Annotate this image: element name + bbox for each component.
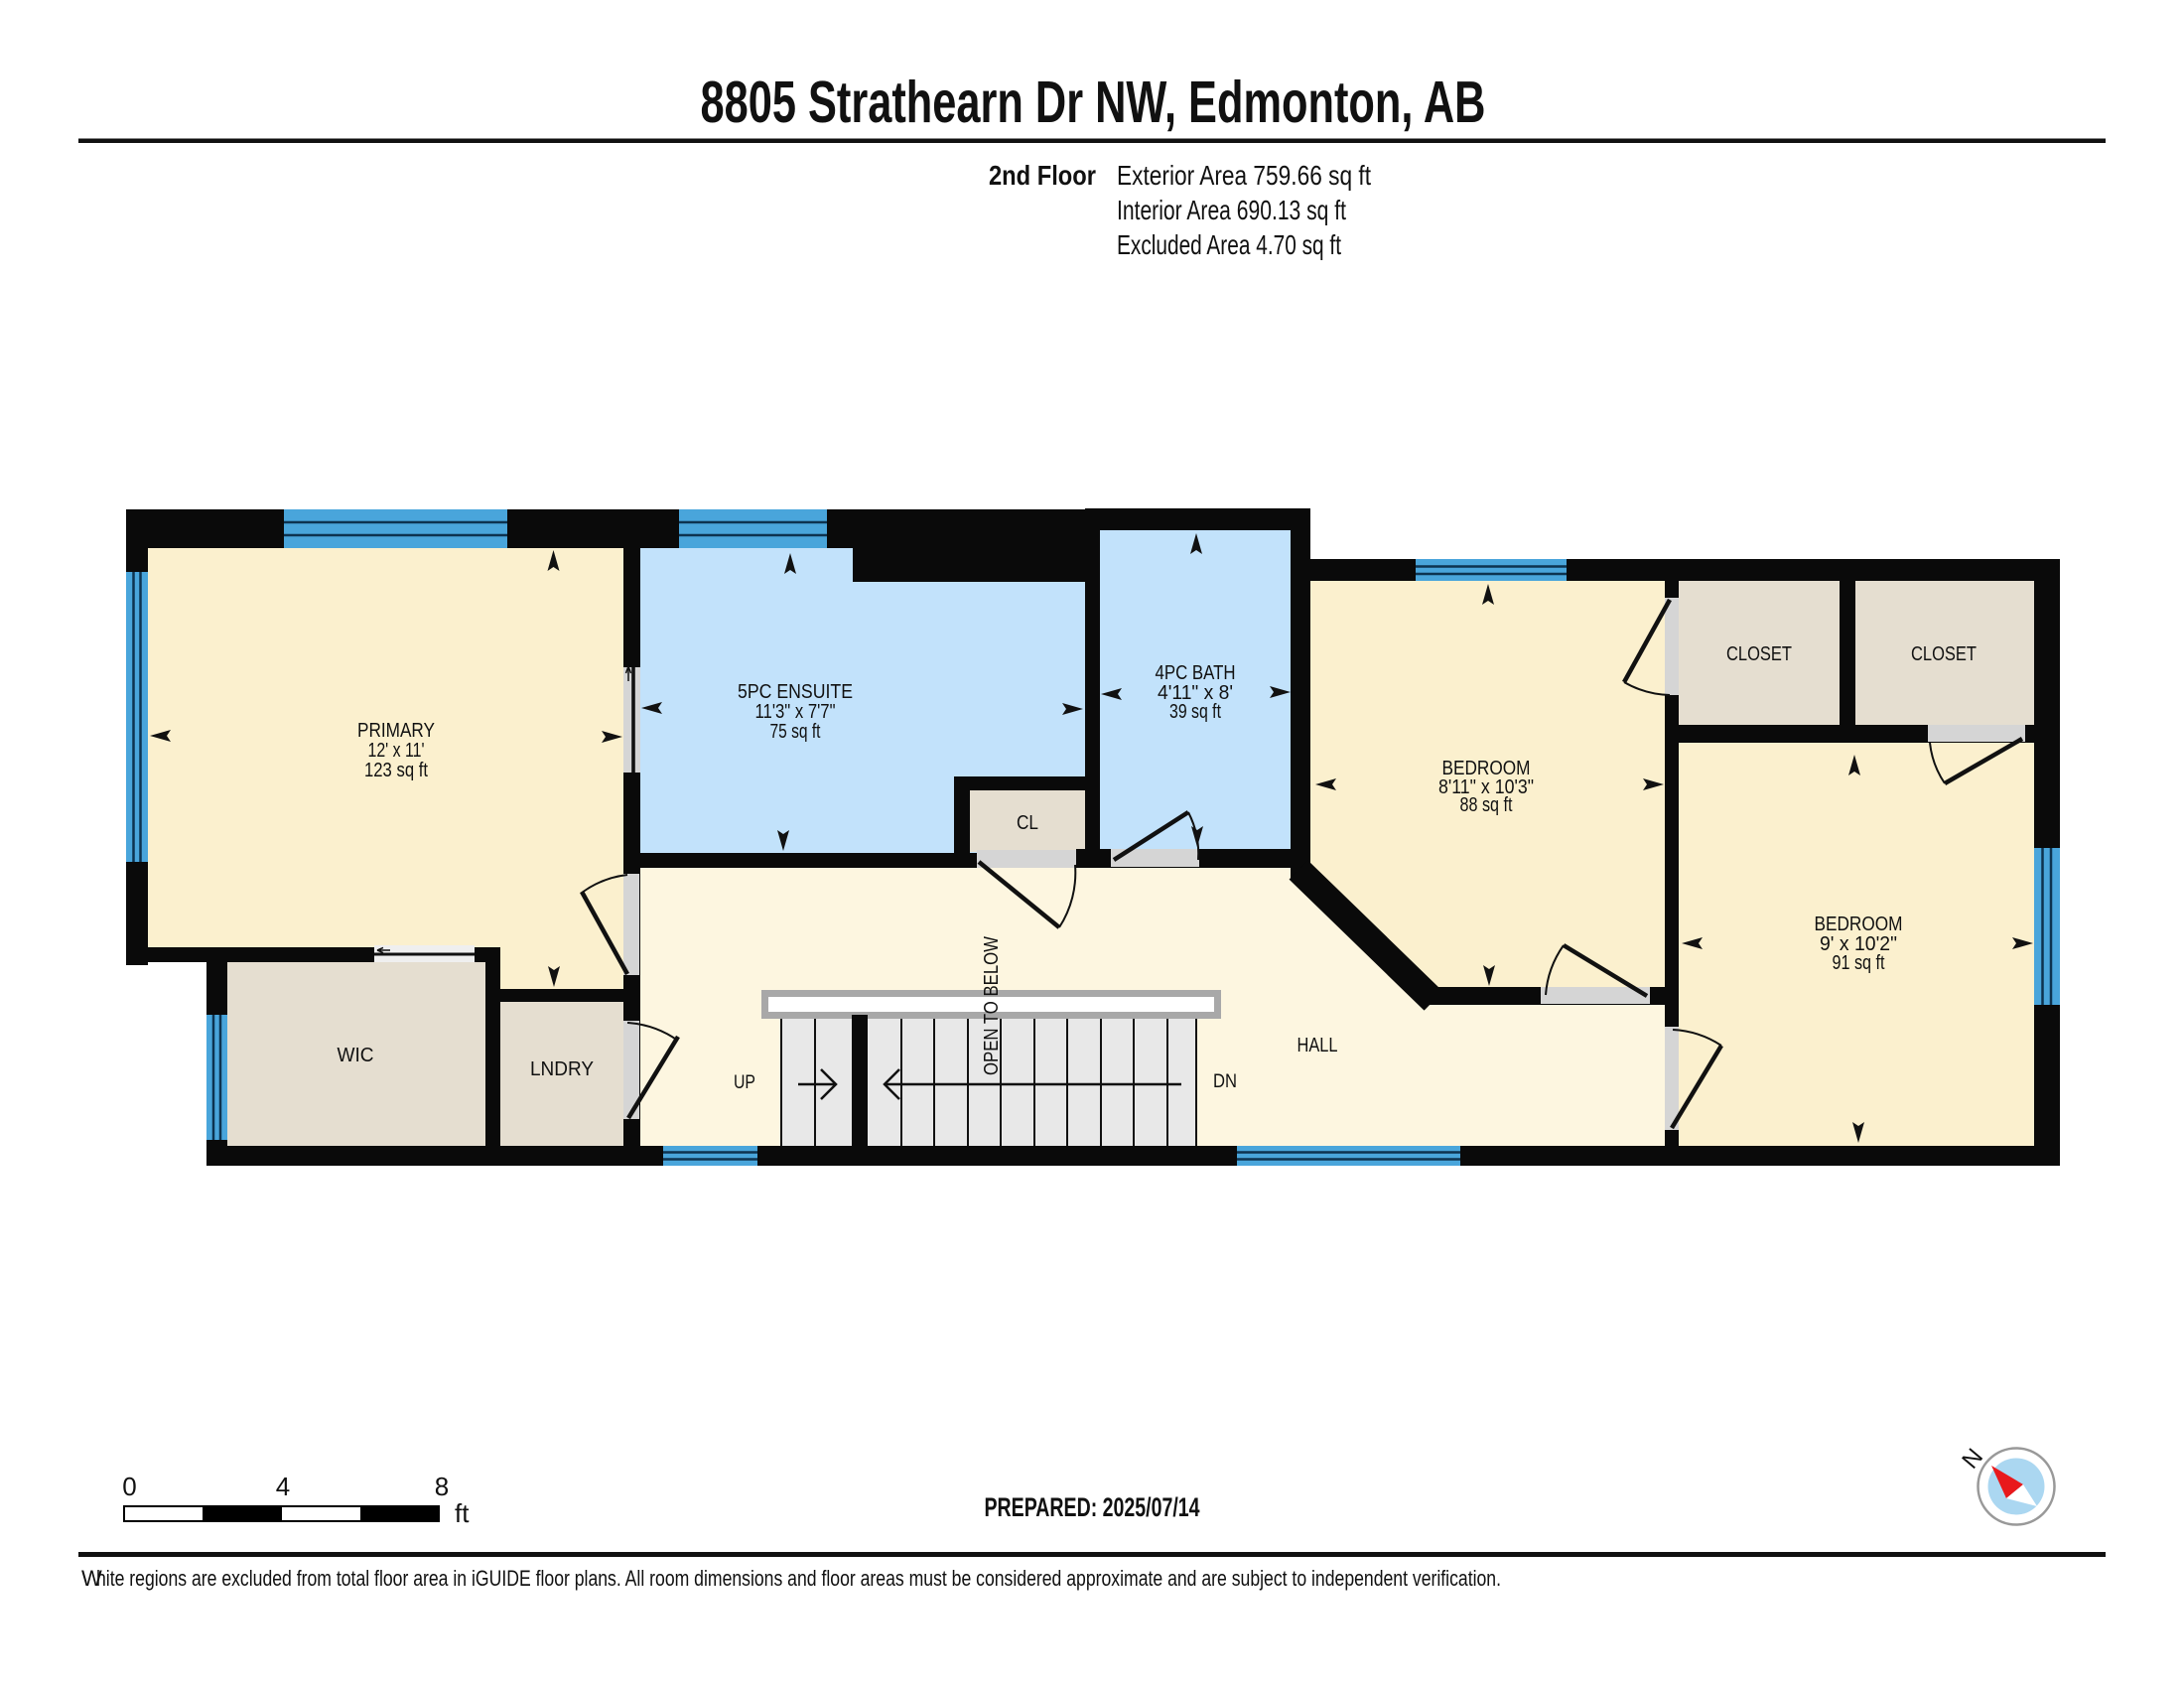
svg-text:Excluded Area 4.70 sq ft: Excluded Area 4.70 sq ft	[1117, 229, 1341, 260]
svg-text:4PC BATH: 4PC BATH	[1156, 662, 1236, 684]
svg-text:CL: CL	[1017, 812, 1038, 834]
svg-text:11'3" x 7'7": 11'3" x 7'7"	[755, 701, 836, 723]
svg-text:12' x 11': 12' x 11'	[368, 740, 425, 762]
svg-text:DN: DN	[1213, 1071, 1237, 1092]
svg-text:88 sq ft: 88 sq ft	[1460, 794, 1513, 816]
svg-text:PREPARED: 2025/07/14: PREPARED: 2025/07/14	[985, 1492, 1200, 1522]
svg-text:2nd Floor: 2nd Floor	[989, 160, 1096, 191]
svg-text:Exterior Area 759.66 sq ft: Exterior Area 759.66 sq ft	[1117, 160, 1371, 191]
svg-text:UP: UP	[734, 1072, 755, 1093]
svg-text:39 sq ft: 39 sq ft	[1169, 701, 1221, 723]
svg-text:HALL: HALL	[1297, 1035, 1338, 1056]
svg-text:LNDRY: LNDRY	[530, 1058, 594, 1080]
svg-text:Interior Area 690.13 sq ft: Interior Area 690.13 sq ft	[1117, 195, 1346, 225]
svg-text:75 sq ft: 75 sq ft	[770, 721, 821, 743]
svg-text:CLOSET: CLOSET	[1726, 643, 1792, 665]
svg-text:OPEN TO BELOW: OPEN TO BELOW	[981, 936, 1003, 1075]
svg-text:123 sq ft: 123 sq ft	[364, 760, 428, 781]
svg-text:WIC: WIC	[338, 1045, 374, 1066]
svg-text:PRIMARY: PRIMARY	[357, 720, 435, 742]
svg-text:hite regions are excluded from: hite regions are excluded from total flo…	[96, 1566, 1501, 1591]
svg-text:0: 0	[122, 1472, 136, 1501]
svg-text:BEDROOM: BEDROOM	[1815, 914, 1903, 935]
svg-text:5PC ENSUITE: 5PC ENSUITE	[738, 681, 853, 703]
svg-text:4: 4	[276, 1472, 290, 1501]
svg-text:8805 Strathearn Dr NW, Edmonto: 8805 Strathearn Dr NW, Edmonton, AB	[701, 70, 1486, 135]
svg-text:91 sq ft: 91 sq ft	[1833, 952, 1885, 974]
svg-text:ft: ft	[455, 1498, 470, 1528]
svg-text:CLOSET: CLOSET	[1911, 643, 1977, 665]
svg-text:8: 8	[435, 1472, 449, 1501]
